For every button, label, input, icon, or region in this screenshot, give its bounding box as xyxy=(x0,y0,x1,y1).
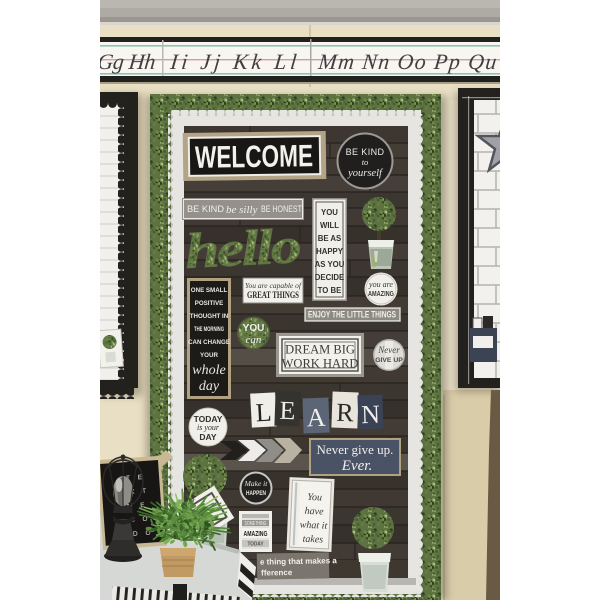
svg-text:what it: what it xyxy=(300,520,328,532)
svg-text:WELCOME: WELCOME xyxy=(195,138,313,175)
svg-text:POSITIVE: POSITIVE xyxy=(195,300,224,307)
svg-text:Never: Never xyxy=(377,345,400,355)
svg-text:HAPPEN: HAPPEN xyxy=(246,491,266,497)
svg-text:TODAY: TODAY xyxy=(248,542,265,548)
svg-text:CAN CHANGE: CAN CHANGE xyxy=(188,339,230,346)
svg-text:AMAZING: AMAZING xyxy=(244,531,268,538)
svg-text:Make it: Make it xyxy=(244,479,269,488)
svg-text:can: can xyxy=(246,334,262,346)
svg-text:R: R xyxy=(336,398,355,428)
svg-text:You are capable of: You are capable of xyxy=(245,281,302,290)
svg-text:takes: takes xyxy=(302,534,323,546)
svg-text:YOU: YOU xyxy=(321,208,338,217)
svg-text:BE KIND: BE KIND xyxy=(346,147,385,157)
svg-text:e thing that makes a: e thing that makes a xyxy=(260,556,338,566)
svg-text:WILL: WILL xyxy=(320,221,339,230)
svg-text:THE MORNING: THE MORNING xyxy=(194,326,224,333)
svg-text:Gg Hh: Gg Hh xyxy=(96,49,157,74)
svg-text:DECIDE: DECIDE xyxy=(315,273,344,282)
svg-text:you are: you are xyxy=(368,280,393,289)
svg-text:ONE SMALL: ONE SMALL xyxy=(191,287,228,294)
svg-text:be silly: be silly xyxy=(226,204,258,216)
svg-text:day: day xyxy=(199,379,220,394)
svg-text:L: L xyxy=(255,398,272,428)
svg-text:Never give up.: Never give up. xyxy=(317,442,394,457)
svg-text:N: N xyxy=(361,400,381,430)
svg-text:Mm Nn Oo Pp Qu: Mm Nn Oo Pp Qu xyxy=(316,49,498,74)
svg-text:E: E xyxy=(279,396,296,426)
svg-text:YOU: YOU xyxy=(243,323,265,334)
svg-text:SOMETHING: SOMETHING xyxy=(245,521,267,527)
svg-text:fference: fference xyxy=(261,568,293,578)
svg-text:hello: hello xyxy=(184,217,302,279)
svg-text:GREAT THINGS: GREAT THINGS xyxy=(247,291,299,301)
svg-text:DREAM BIG: DREAM BIG xyxy=(285,343,355,357)
svg-text:You: You xyxy=(307,492,322,504)
svg-text:BE HONEST: BE HONEST xyxy=(261,204,302,214)
svg-text:BE AS: BE AS xyxy=(318,234,342,243)
svg-text:to: to xyxy=(362,157,369,167)
svg-text:ENJOY THE LITTLE THINGS: ENJOY THE LITTLE THINGS xyxy=(308,310,396,320)
svg-text:is your: is your xyxy=(197,423,220,432)
svg-text:AMAZING: AMAZING xyxy=(368,291,394,298)
svg-text:have: have xyxy=(304,506,324,518)
svg-text:whole: whole xyxy=(192,363,225,378)
svg-text:AS YOU: AS YOU xyxy=(315,260,345,269)
svg-text:BE KIND: BE KIND xyxy=(187,204,225,214)
svg-text:Ever.: Ever. xyxy=(341,458,372,474)
svg-text:YOUR: YOUR xyxy=(200,352,218,359)
svg-text:TO BE: TO BE xyxy=(318,286,342,295)
svg-text:WORK HARD: WORK HARD xyxy=(282,357,359,371)
svg-text:yourself: yourself xyxy=(347,168,384,179)
svg-text:A: A xyxy=(306,403,326,433)
svg-text:DAY: DAY xyxy=(199,432,216,442)
svg-text:GIVE UP: GIVE UP xyxy=(375,357,403,364)
svg-text:THOUGHT IN: THOUGHT IN xyxy=(190,313,229,320)
svg-text:HAPPY: HAPPY xyxy=(316,247,344,256)
